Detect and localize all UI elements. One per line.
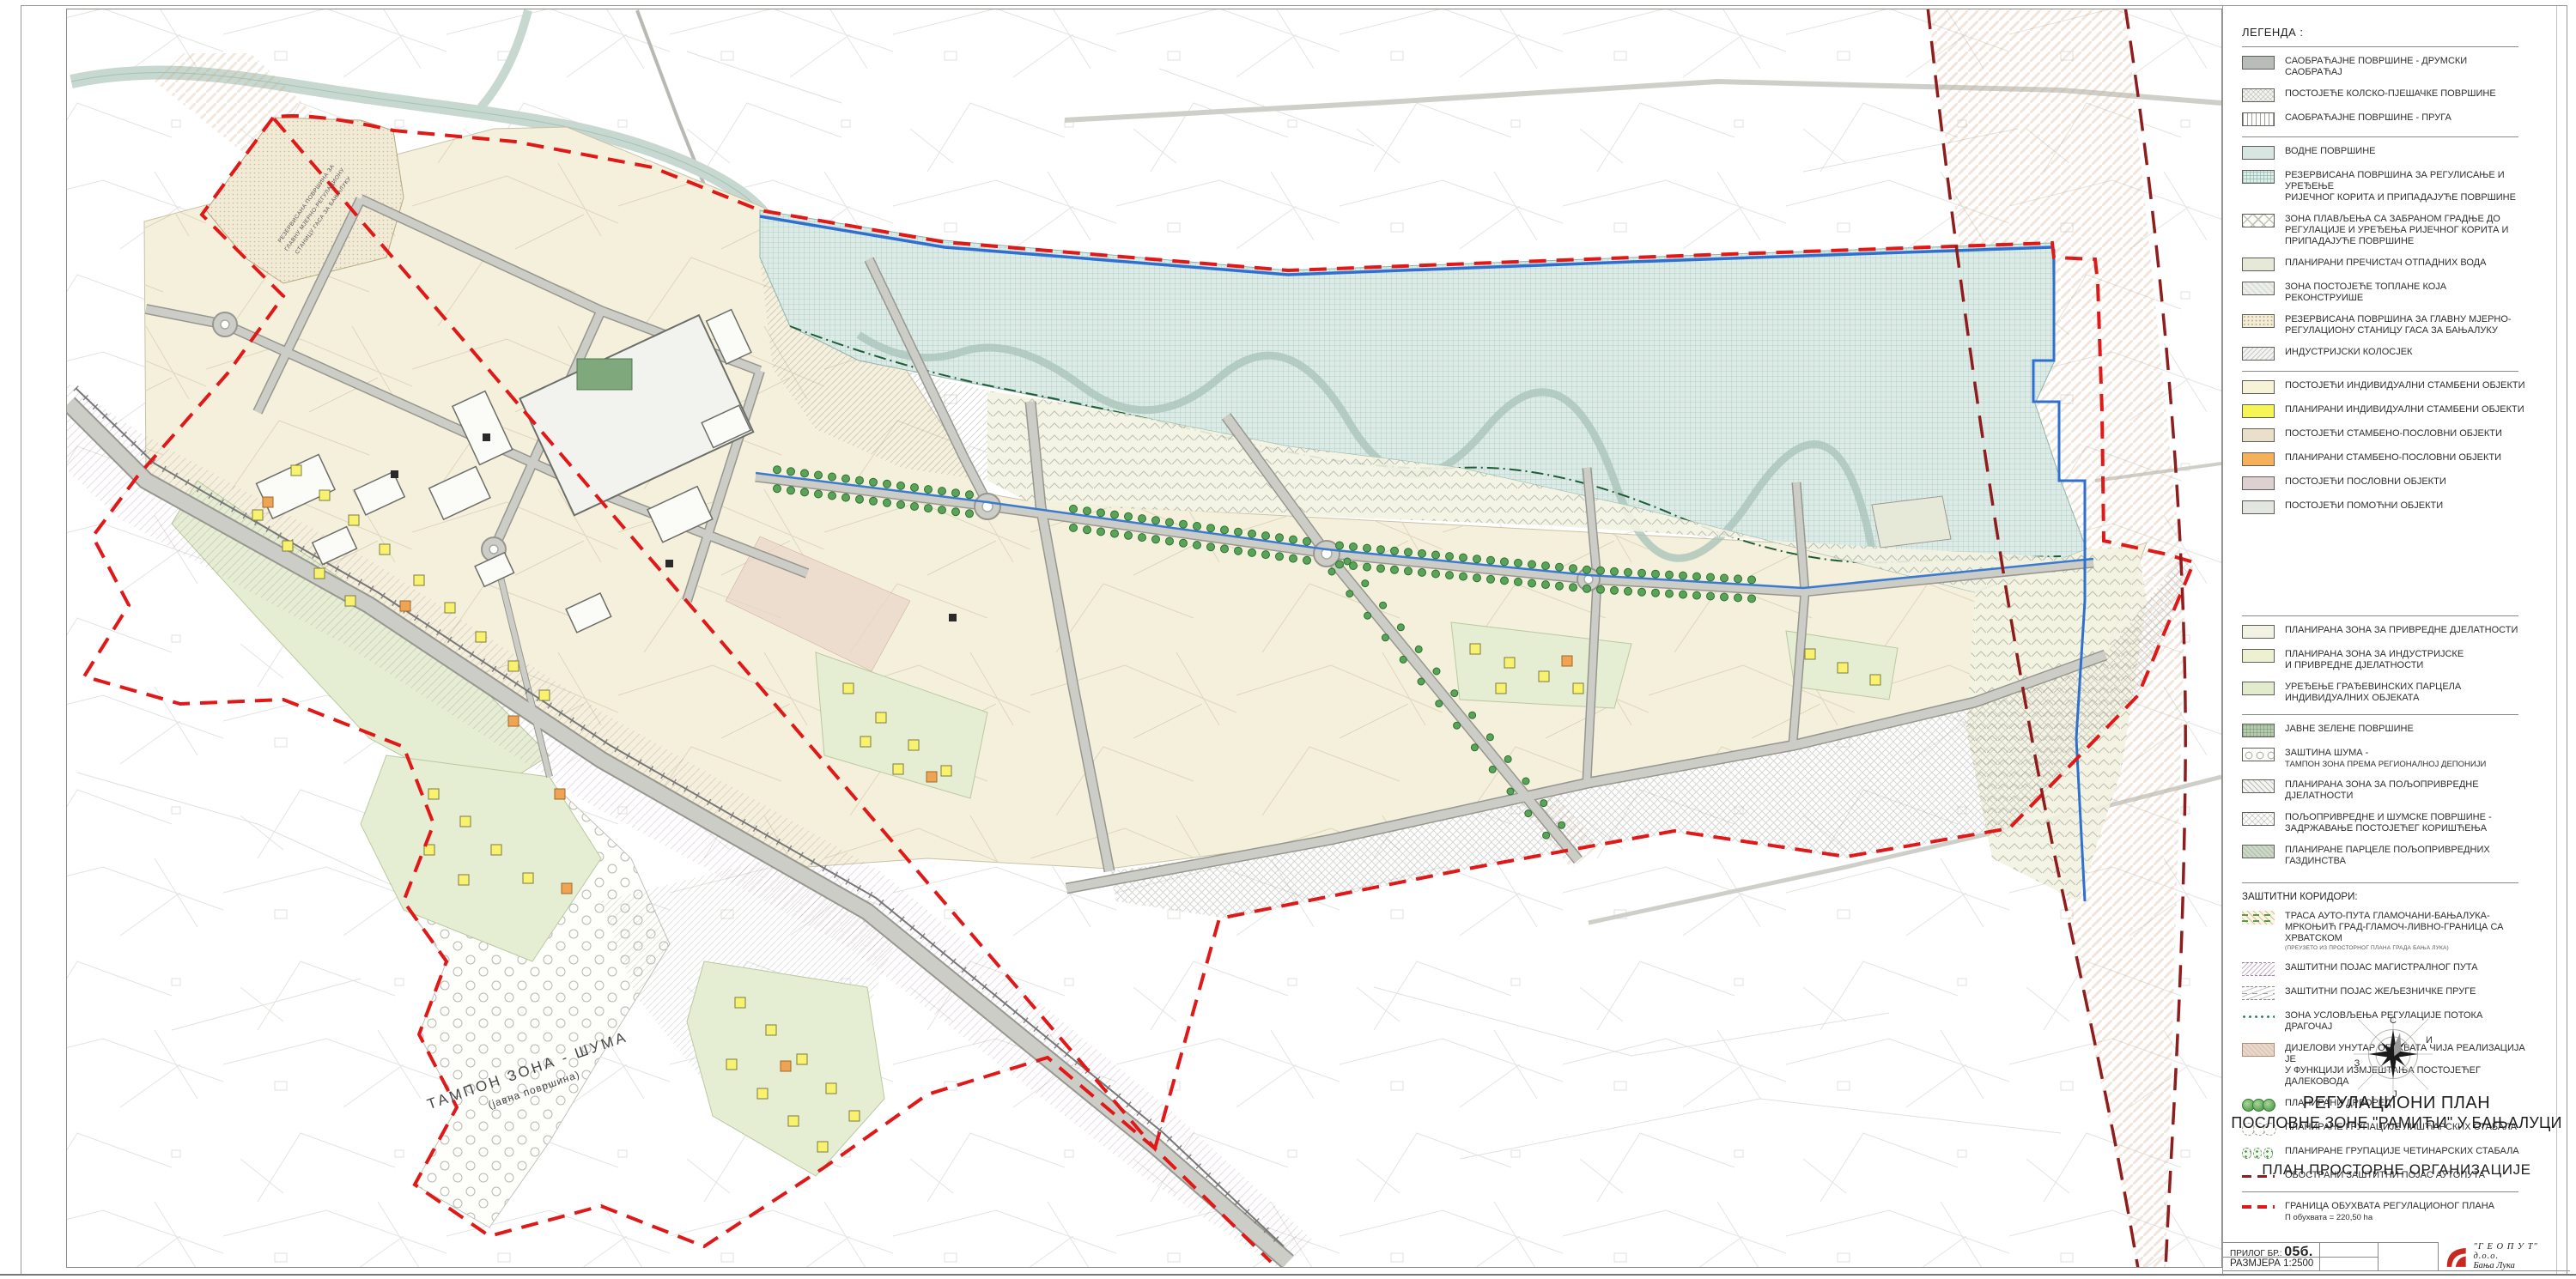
sheet-bottom-rule bbox=[0, 1274, 2576, 1276]
legend-swatch-wwtp bbox=[2242, 258, 2275, 271]
legend-title: ЛЕГЕНДА : bbox=[2242, 26, 2525, 39]
legend-swatch-lineRed bbox=[2242, 1205, 2275, 1209]
legend-item-label: ИНДУСТРИЈСКИ КОЛОСЈЕК bbox=[2285, 347, 2412, 358]
legend-swatch-water bbox=[2242, 146, 2275, 160]
company-logo: "Г Е О П У Т" д.о.о. Бања Лука bbox=[2445, 1242, 2565, 1270]
legend-item-label: ТРАСА АУТО-ПУТА ГЛАМОЧАНИ-БАЊАЛУКА- МРКО… bbox=[2285, 911, 2525, 944]
legend-item: ЗАШТИНА ШУМА -ТАМПОН ЗОНА ПРЕМА РЕГИОНАЛ… bbox=[2242, 748, 2525, 769]
legend-item: ПЛАНИРАНИ ИНДИВИДУАЛНИ СТАМБЕНИ ОБЈЕКТИ bbox=[2242, 404, 2525, 418]
legend-swatch-agri-forest bbox=[2242, 812, 2275, 826]
company-city: Бања Лука bbox=[2473, 1261, 2565, 1270]
legend-swatch-road bbox=[2242, 56, 2275, 70]
legend-swatch-siding bbox=[2242, 347, 2275, 361]
legend-item: ГРАНИЦА ОБУХВАТА РЕГУЛАЦИОНОГ ПЛАНАП обу… bbox=[2242, 1201, 2525, 1222]
legend-swatch-exist-business bbox=[2242, 476, 2275, 490]
legend-swatch-gas bbox=[2242, 314, 2275, 328]
legend-item-label: РЕЗЕРВИСАНА ПОВРШИНА ЗА ГЛАВНУ МЈЕРНО- Р… bbox=[2285, 314, 2512, 336]
scale-label: РАЗМЈЕРА 1:2500 bbox=[2230, 1258, 2350, 1269]
legend-item: УРЕЂЕЊЕ ГРАЂЕВИНСКИХ ПАРЦЕЛА ИНДИВИДУАЛН… bbox=[2242, 682, 2525, 704]
legend-item: РЕЗЕРВИСАНА ПОВРШИНА ЗА ГЛАВНУ МЈЕРНО- Р… bbox=[2242, 314, 2525, 336]
legend-item: ЗОНА ПОСТОЈЕЋЕ ТОПЛАНЕ КОЈА РЕКОНСТРУИШЕ bbox=[2242, 282, 2525, 304]
legend-item: САОБРАЋАЈНЕ ПОВРШИНЕ - ДРУМСКИ САОБРАЋАЈ bbox=[2242, 56, 2525, 78]
legend-item-label: ПОСТОЈЕЋИ СТАМБЕНО-ПОСЛОВНИ ОБЈЕКТИ bbox=[2285, 428, 2502, 439]
legend-item: ПЛАНИРАНА ЗОНА ЗА ИНДУСТРИЈСКЕ И ПРИВРЕД… bbox=[2242, 649, 2525, 671]
plan-title-line2: ПОСЛОВНЕ ЗОНЕ "РАМИЋИ" У БАЊАЛУЦИ bbox=[2223, 1114, 2570, 1132]
legend-item: РЕЗЕРВИСАНА ПОВРШИНА ЗА РЕГУЛИСАЊЕ И УРЕ… bbox=[2242, 170, 2525, 203]
conifer-icon bbox=[2242, 1146, 2275, 1160]
legend-item-label: ПЛАНИРАНИ ИНДИВИДУАЛНИ СТАМБЕНИ ОБЈЕКТИ bbox=[2285, 404, 2524, 415]
legend-swatch-industry bbox=[2242, 649, 2275, 663]
compass-north: С bbox=[2390, 1015, 2397, 1026]
conifer-patch bbox=[577, 359, 632, 390]
legend-item: ТРАСА АУТО-ПУТА ГЛАМОЧАНИ-БАЊАЛУКА- МРКО… bbox=[2242, 911, 2525, 952]
compass-rose: С И З Ј bbox=[2342, 1003, 2445, 1106]
legend-section-heading: ЗАШТИТНИ КОРИДОРИ: bbox=[2242, 892, 2525, 902]
legend-swatch-econ bbox=[2242, 625, 2275, 639]
legend-item-label: ПЛАНИРАНЕ ПАРЦЕЛЕ ПОЉОПРИВРЕДНИХ ГАЗДИНС… bbox=[2285, 845, 2525, 867]
legend-swatch-parcels-ind bbox=[2242, 682, 2275, 695]
legend-section-greenag: ЈАВНЕ ЗЕЛЕНЕ ПОВРШИНЕЗАШТИНА ШУМА -ТАМПО… bbox=[2242, 714, 2525, 867]
legend-item: ПЛАНИРАНА ЗОНА ЗА ПРИВРЕДНЕ ДЈЕЛАТНОСТИ bbox=[2242, 625, 2525, 639]
geoput-logo-icon bbox=[2445, 1245, 2468, 1269]
legend-item: ИНДУСТРИЈСКИ КОЛОСЈЕК bbox=[2242, 347, 2525, 361]
legend-item-label: ПОСТОЈЕЋИ ИНДИВИДУАЛНИ СТАМБЕНИ ОБЈЕКТИ bbox=[2285, 380, 2525, 391]
legend-item: ЗАШТИТНИ ПОЈАС ЖЕЉЕЗНИЧКЕ ПРУГЕ bbox=[2242, 986, 2525, 1000]
legend-item: ПЛАНИРАНА ЗОНА ЗА ПОЉОПРИВРЕДНЕ ДЈЕЛАТНО… bbox=[2242, 779, 2525, 802]
plan-sheet: РЕЗЕРВИСАНА ПОВРШИНА ЗА ГЛАВНУ МЈЕРНО-РЕ… bbox=[0, 0, 2576, 1279]
legend-item: ЗАШТИТНИ ПОЈАС МАГИСТРАЛНОГ ПУТА bbox=[2242, 962, 2525, 976]
legend-item-label: ПЛАНИРАНИ ПРЕЧИСТАЧ ОТПАДНИХ ВОДА bbox=[2285, 258, 2486, 269]
legend-item: ПЛАНИРАНИ ПРЕЧИСТАЧ ОТПАДНИХ ВОДА bbox=[2242, 258, 2525, 271]
legend-item-label: ПОЉОПРИВРЕДНЕ И ШУМСКЕ ПОВРШИНЕ - ЗАДРЖА… bbox=[2285, 812, 2492, 834]
legend-item-label: ПОСТОЈЕЋЕ КОЛСКО-ПЈЕШАЧКЕ ПОВРШИНЕ bbox=[2285, 88, 2496, 100]
legend-swatch-rail bbox=[2242, 112, 2275, 126]
company-name: "Г Е О П У Т" д.о.о. bbox=[2473, 1242, 2565, 1261]
legend-item: ПОСТОЈЕЋИ СТАМБЕНО-ПОСЛОВНИ ОБЈЕКТИ bbox=[2242, 428, 2525, 442]
legend-swatch-exist-house bbox=[2242, 380, 2275, 394]
compass-east: И bbox=[2426, 1035, 2433, 1046]
legend-section-transport: САОБРАЋАЈНЕ ПОВРШИНЕ - ДРУМСКИ САОБРАЋАЈ… bbox=[2242, 46, 2525, 126]
legend-item-label: САОБРАЋАЈНЕ ПОВРШИНЕ - ПРУГА bbox=[2285, 112, 2451, 124]
plan-map: РЕЗЕРВИСАНА ПОВРШИНА ЗА ГЛАВНУ МЈЕРНО-РЕ… bbox=[0, 0, 2576, 1279]
legend-item-label: ЗАШТИНА ШУМА - bbox=[2285, 748, 2486, 759]
legend-item: ПОСТОЈЕЋИ ИНДИВИДУАЛНИ СТАМБЕНИ ОБЈЕКТИ bbox=[2242, 380, 2525, 394]
legend-item-label: ПОСТОЈЕЋИ ПОСЛОВНИ ОБЈЕКТИ bbox=[2285, 476, 2446, 488]
legend-item-label: ПЛАНИРАНА ЗОНА ЗА ПОЉОПРИВРЕДНЕ ДЈЕЛАТНО… bbox=[2285, 779, 2525, 802]
legend-swatch-river bbox=[2242, 170, 2275, 184]
legend-item: ПОЉОПРИВРЕДНЕ И ШУМСКЕ ПОВРШИНЕ - ЗАДРЖА… bbox=[2242, 812, 2525, 834]
legend-item: САОБРАЋАЈНЕ ПОВРШИНЕ - ПРУГА bbox=[2242, 112, 2525, 126]
legend-swatch-powerline bbox=[2242, 1043, 2275, 1057]
legend-swatch-railzone bbox=[2242, 986, 2275, 1000]
legend-item: ПЛАНИРАНЕ ПАРЦЕЛЕ ПОЉОПРИВРЕДНИХ ГАЗДИНС… bbox=[2242, 845, 2525, 867]
footer-line-top bbox=[2223, 1242, 2438, 1243]
legend-item-label: ВОДНЕ ПОВРШИНЕ bbox=[2285, 146, 2375, 157]
legend-item-label: ПЛАНИРАНИ СТАМБЕНО-ПОСЛОВНИ ОБЈЕКТИ bbox=[2285, 452, 2501, 464]
legend-item-label: ПЛАНИРАНА ЗОНА ЗА ПРИВРЕДНЕ ДЈЕЛАТНОСТИ bbox=[2285, 625, 2518, 636]
legend-swatch-forest bbox=[2242, 748, 2275, 761]
legend-swatch-plan-house bbox=[2242, 404, 2275, 418]
legend-item-label: ГРАНИЦА ОБУХВАТА РЕГУЛАЦИОНОГ ПЛАНА bbox=[2285, 1201, 2494, 1212]
wwtp-parcel bbox=[1872, 496, 1951, 548]
legend-swatch-flood bbox=[2242, 214, 2275, 227]
legend-section-buildings: ПОСТОЈЕЋИ ИНДИВИДУАЛНИ СТАМБЕНИ ОБЈЕКТИП… bbox=[2242, 371, 2525, 514]
legend-item: ПОСТОЈЕЋЕ КОЛСКО-ПЈЕШАЧКЕ ПОВРШИНЕ bbox=[2242, 88, 2525, 102]
legend-swatch-agri-parcels bbox=[2242, 845, 2275, 858]
legend-item-sublabel: П обухвата = 220,50 ha bbox=[2285, 1213, 2494, 1222]
panel-inner-border bbox=[2556, 5, 2557, 1274]
legend-swatch-magroad bbox=[2242, 962, 2275, 976]
legend-swatch-exist-mixed bbox=[2242, 428, 2275, 442]
legend-item-note: (ПРЕУЗЕТО ИЗ ПРОСТОРНОГ ПЛАНА ГРАДА БАЊА… bbox=[2285, 945, 2525, 952]
legend-swatch-dots bbox=[2242, 1015, 2275, 1019]
legend-item: ВОДНЕ ПОВРШИНЕ bbox=[2242, 146, 2525, 160]
compass-west: З bbox=[2354, 1058, 2360, 1069]
legend-section-boundary: ГРАНИЦА ОБУХВАТА РЕГУЛАЦИОНОГ ПЛАНАП обу… bbox=[2242, 1191, 2525, 1222]
legend-item-label: САОБРАЋАЈНЕ ПОВРШИНЕ - ДРУМСКИ САОБРАЋАЈ bbox=[2285, 56, 2525, 78]
legend-item-label: ПЛАНИРАНА ЗОНА ЗА ИНДУСТРИЈСКЕ И ПРИВРЕД… bbox=[2285, 649, 2464, 671]
legend-item: ЗОНА ПЛАВЉЕЊА СА ЗАБРАНОМ ГРАДЊЕ ДО РЕГУ… bbox=[2242, 214, 2525, 247]
legend-section-planned: ПЛАНИРАНА ЗОНА ЗА ПРИВРЕДНЕ ДЈЕЛАТНОСТИП… bbox=[2242, 615, 2525, 704]
legend-item-label: ПОСТОЈЕЋИ ПОМОЋНИ ОБЈЕКТИ bbox=[2285, 500, 2443, 512]
legend-swatch-heating bbox=[2242, 282, 2275, 295]
legend-item-label: ЗОНА ПОСТОЈЕЋЕ ТОПЛАНЕ КОЈА РЕКОНСТРУИШЕ bbox=[2285, 282, 2525, 304]
legend-item-label: ЗАШТИТНИ ПОЈАС ЖЕЉЕЗНИЧКЕ ПРУГЕ bbox=[2285, 986, 2476, 997]
legend-item: ПЛАНИРАНЕ ГРУПАЦИЈЕ ЧЕТИНАРСКИХ СТАБАЛА bbox=[2242, 1146, 2525, 1160]
legend-item: ПОСТОЈЕЋИ ПОСЛОВНИ ОБЈЕКТИ bbox=[2242, 476, 2525, 490]
legend-swatch-pedestrian bbox=[2242, 88, 2275, 102]
side-panel: ЛЕГЕНДА : САОБРАЋАЈНЕ ПОВРШИНЕ - ДРУМСКИ… bbox=[2222, 5, 2569, 1274]
legend-swatch-green bbox=[2242, 724, 2275, 737]
legend-swatch-exist-aux bbox=[2242, 500, 2275, 514]
legend-item-label: УРЕЂЕЊЕ ГРАЂЕВИНСКИХ ПАРЦЕЛА ИНДИВИДУАЛН… bbox=[2285, 682, 2461, 704]
legend-item: ЈАВНЕ ЗЕЛЕНЕ ПОВРШИНЕ bbox=[2242, 724, 2525, 737]
footer-div3 bbox=[2438, 1242, 2439, 1270]
legend-section-water: ВОДНЕ ПОВРШИНЕРЕЗЕРВИСАНА ПОВРШИНА ЗА РЕ… bbox=[2242, 136, 2525, 361]
legend-item-label: ЈАВНЕ ЗЕЛЕНЕ ПОВРШИНЕ bbox=[2285, 724, 2414, 735]
legend-item-label: ЗАШТИТНИ ПОЈАС МАГИСТРАЛНОГ ПУТА bbox=[2285, 962, 2478, 973]
legend-item-label: РЕЗЕРВИСАНА ПОВРШИНА ЗА РЕГУЛИСАЊЕ И УРЕ… bbox=[2285, 170, 2525, 203]
legend-item: ПОСТОЈЕЋИ ПОМОЋНИ ОБЈЕКТИ bbox=[2242, 500, 2525, 514]
legend-item-label: ЗОНА ПЛАВЉЕЊА СА ЗАБРАНОМ ГРАДЊЕ ДО РЕГУ… bbox=[2285, 214, 2508, 247]
plan-subtitle: ПЛАН ПРОСТОРНЕ ОРГАНИЗАЦИЈЕ bbox=[2223, 1161, 2570, 1179]
legend-swatch-agri bbox=[2242, 779, 2275, 793]
legend-swatch-highway bbox=[2242, 911, 2275, 924]
legend-item-sublabel: ТАМПОН ЗОНА ПРЕМА РЕГИОНАЛНОЈ ДЕПОНИЈИ bbox=[2285, 760, 2486, 769]
footer-div2 bbox=[2378, 1242, 2379, 1270]
legend-item-label: ПЛАНИРАНЕ ГРУПАЦИЈЕ ЧЕТИНАРСКИХ СТАБАЛА bbox=[2285, 1146, 2519, 1157]
legend-item: ПЛАНИРАНИ СТАМБЕНО-ПОСЛОВНИ ОБЈЕКТИ bbox=[2242, 452, 2525, 466]
footer-line-bottom bbox=[2223, 1270, 2570, 1271]
plan-title-line1: РЕГУЛАЦИОНИ ПЛАН bbox=[2223, 1094, 2570, 1113]
legend-swatch-plan-mixed bbox=[2242, 452, 2275, 466]
